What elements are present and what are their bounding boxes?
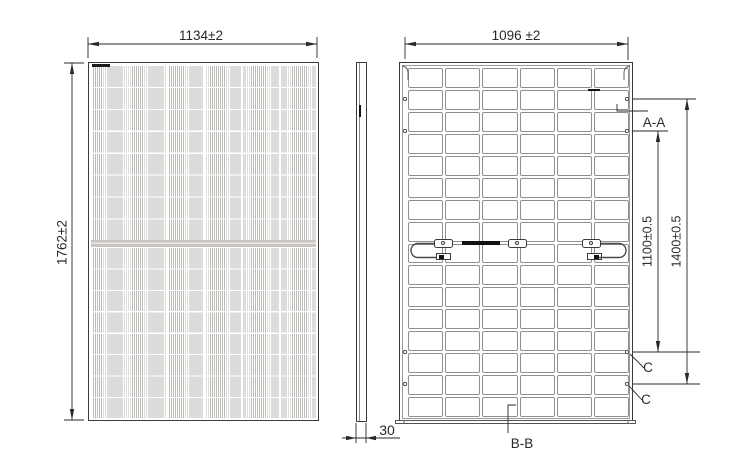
back-cell [594, 178, 629, 198]
back-cell [557, 156, 592, 176]
side-mount-mark [359, 105, 362, 117]
back-cell [445, 375, 480, 395]
mounting-hole [625, 97, 628, 100]
back-cell [408, 90, 443, 110]
cable-connector-right [587, 253, 602, 260]
dim-front-width-label: 1134±2 [158, 28, 244, 43]
back-cell [557, 331, 592, 351]
back-cell [408, 353, 443, 373]
back-cell [594, 156, 629, 176]
back-cell [594, 353, 629, 373]
back-cell [594, 265, 629, 285]
back-cell [482, 353, 517, 373]
back-cell [482, 200, 517, 220]
junction-box-port-icon [441, 241, 446, 246]
junction-box-right [582, 239, 601, 248]
back-cell [594, 397, 629, 417]
front-center-band [91, 240, 316, 247]
back-cell [408, 156, 443, 176]
back-cell [594, 200, 629, 220]
back-cell [557, 90, 592, 110]
front-cells-top [91, 65, 316, 240]
back-cell [594, 68, 629, 88]
back-cell [445, 309, 480, 329]
back-cell [445, 287, 480, 307]
back-cell [482, 68, 517, 88]
back-cell [520, 90, 555, 110]
back-cell [408, 287, 443, 307]
dim-front-height-label: 1762±2 [55, 198, 70, 286]
dim-thickness-label: 30 [374, 423, 400, 438]
section-c-lower-label: C [639, 392, 653, 407]
back-cell [594, 375, 629, 395]
back-cell [520, 134, 555, 154]
back-cell [557, 397, 592, 417]
side-view [356, 62, 367, 422]
cable-connector-left [436, 253, 451, 260]
front-nameplate-mark [92, 64, 110, 68]
back-bottom-flange [395, 420, 636, 424]
back-cell [520, 331, 555, 351]
back-cell [482, 309, 517, 329]
back-cell [520, 397, 555, 417]
back-cell [557, 68, 592, 88]
back-cell [557, 200, 592, 220]
back-cell [445, 156, 480, 176]
dim-span-inner-label: 1100±0.5 [641, 202, 656, 282]
front-view [88, 62, 319, 421]
technical-drawing: 1134±2 1762±2 1096 ±2 1100±0.5 1400±0.5 … [0, 0, 750, 465]
back-cell [408, 200, 443, 220]
back-cell [520, 156, 555, 176]
back-cell [408, 309, 443, 329]
back-cell [594, 331, 629, 351]
back-cell [520, 375, 555, 395]
back-cell [408, 265, 443, 285]
back-cell [408, 68, 443, 88]
connector-pin-icon [594, 255, 599, 259]
back-cell [445, 331, 480, 351]
back-cell [594, 134, 629, 154]
section-bb-label: B-B [502, 436, 542, 451]
mounting-hole [403, 97, 406, 100]
back-cell [557, 309, 592, 329]
back-cell [520, 287, 555, 307]
back-cell [408, 178, 443, 198]
dim-span-outer-label: 1400±0.5 [670, 202, 685, 282]
section-aa-label: A-A [638, 115, 670, 130]
back-cell [408, 331, 443, 351]
back-cell [520, 353, 555, 373]
back-cell [482, 90, 517, 110]
back-cell [594, 112, 629, 132]
back-cell [482, 375, 517, 395]
back-cell [408, 375, 443, 395]
back-cell [408, 134, 443, 154]
mounting-hole [625, 350, 628, 353]
back-cell [445, 90, 480, 110]
back-cell [557, 265, 592, 285]
connector-pin-icon [439, 255, 444, 259]
back-cell [557, 375, 592, 395]
back-cell [482, 178, 517, 198]
back-cell [482, 265, 517, 285]
back-cell [482, 156, 517, 176]
front-cells-bottom [91, 247, 316, 418]
back-cell [557, 112, 592, 132]
back-cell [482, 287, 517, 307]
back-cell [520, 68, 555, 88]
back-cell [445, 134, 480, 154]
junction-box-port-icon [589, 241, 594, 246]
mounting-hole [403, 129, 406, 132]
back-label-mark [588, 89, 600, 92]
back-cell [445, 353, 480, 373]
back-cell [445, 397, 480, 417]
back-cell [482, 331, 517, 351]
back-cell [445, 112, 480, 132]
back-cell [594, 287, 629, 307]
section-c-upper-label: C [641, 360, 655, 375]
back-cell [557, 353, 592, 373]
back-cell [594, 309, 629, 329]
back-cell [520, 178, 555, 198]
back-cell [520, 112, 555, 132]
mounting-hole [403, 350, 406, 353]
mounting-hole [403, 382, 406, 385]
back-cell [520, 309, 555, 329]
mounting-hole [625, 382, 628, 385]
junction-box-left [434, 239, 453, 248]
back-cell [594, 90, 629, 110]
back-cell [445, 200, 480, 220]
junction-cable-bar [462, 241, 500, 245]
back-cell [445, 68, 480, 88]
junction-box-center [508, 239, 527, 248]
back-cell [482, 112, 517, 132]
back-cell [408, 112, 443, 132]
mounting-hole [625, 129, 628, 132]
back-cell [445, 178, 480, 198]
dim-back-width-label: 1096 ±2 [473, 28, 559, 43]
back-cell [445, 265, 480, 285]
back-cell [408, 397, 443, 417]
back-cell [520, 200, 555, 220]
back-cell [557, 134, 592, 154]
back-cell [482, 397, 517, 417]
back-cell [520, 265, 555, 285]
junction-box-port-icon [515, 241, 520, 246]
back-cell [482, 134, 517, 154]
back-cell [557, 287, 592, 307]
back-cell [557, 178, 592, 198]
